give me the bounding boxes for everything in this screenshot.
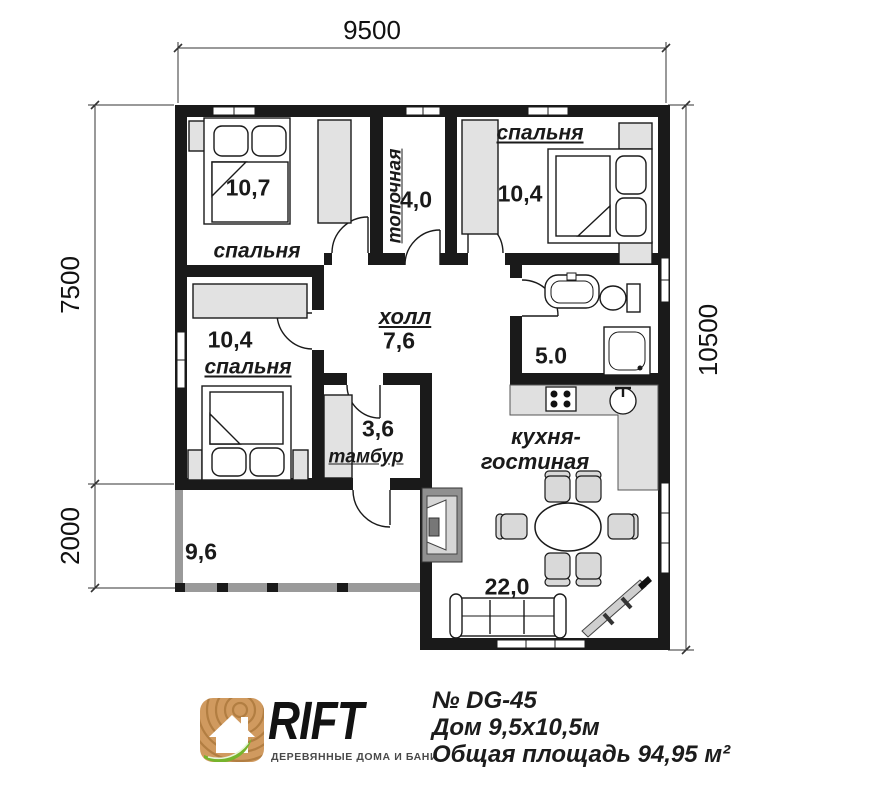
label-kitchen-line2: гостиная [481,451,589,473]
pillow [252,126,286,156]
company-logo [200,698,264,762]
area-bathroom: 5.0 [535,345,567,368]
dimension-left-upper: 7500 [57,256,83,314]
area-vestibule: 3,6 [362,418,394,441]
logo-tagline: ДЕРЕВЯННЫЕ ДОМА И БАНИ [271,751,438,763]
dimension-left-lower: 2000 [57,507,83,565]
pillow [616,156,646,194]
bedroom-mid-left-furniture [188,284,308,480]
label-hall: холл [379,306,432,328]
pillow [214,126,248,156]
kitchen-living-furniture [422,385,658,638]
label-kitchen-line1: кухня- [511,426,581,448]
toilet-tank [627,284,640,312]
project-number: № DG-45 [432,687,730,714]
area-bedroom-top-right: 10,4 [498,183,543,206]
logo-house-icon [200,698,264,762]
logo-wordmark: RIFT [268,690,363,752]
area-terrace: 9,6 [185,541,217,564]
fireplace-icon [422,488,462,562]
floor-plan-page: 9500 7500 2000 10500 10,7 спальня топочн… [0,0,881,795]
pillow [212,448,246,476]
nightstand [293,450,308,480]
label-vestibule: тамбур [329,448,404,467]
dimension-top: 9500 [343,17,401,43]
label-bedroom-top-left: спальня [213,241,300,262]
area-hall: 7,6 [383,330,415,353]
area-boiler-room: 4,0 [400,189,432,212]
area-bedroom-mid-left: 10,4 [208,329,253,352]
nightstand [619,123,652,149]
stove-icon [546,387,576,411]
floor-plan-drawing [0,0,881,795]
pillow [616,198,646,236]
nightstand [619,242,652,264]
dimension-right: 10500 [695,304,721,376]
sofa-icon [450,594,566,638]
bedroom-top-left-furniture [189,118,351,224]
label-bedroom-top-right: спальня [496,123,583,144]
pillow [250,448,284,476]
area-bedroom-top-left: 10,7 [226,177,271,200]
nightstand [189,121,205,151]
wardrobe [193,284,307,318]
total-area: Общая площадь 94,95 м² [432,741,730,768]
wardrobe [318,120,351,223]
label-bedroom-mid-left: спальня [204,357,291,378]
nightstand [188,450,202,480]
shower-icon [604,327,650,375]
dining-table-icon [535,503,601,551]
house-size: Дом 9,5х10,5м [432,714,730,741]
area-kitchen-living: 22,0 [485,576,530,599]
project-info: № DG-45 Дом 9,5х10,5м Общая площадь 94,9… [432,687,730,768]
wardrobe [462,120,498,234]
toilet-icon [600,286,626,310]
